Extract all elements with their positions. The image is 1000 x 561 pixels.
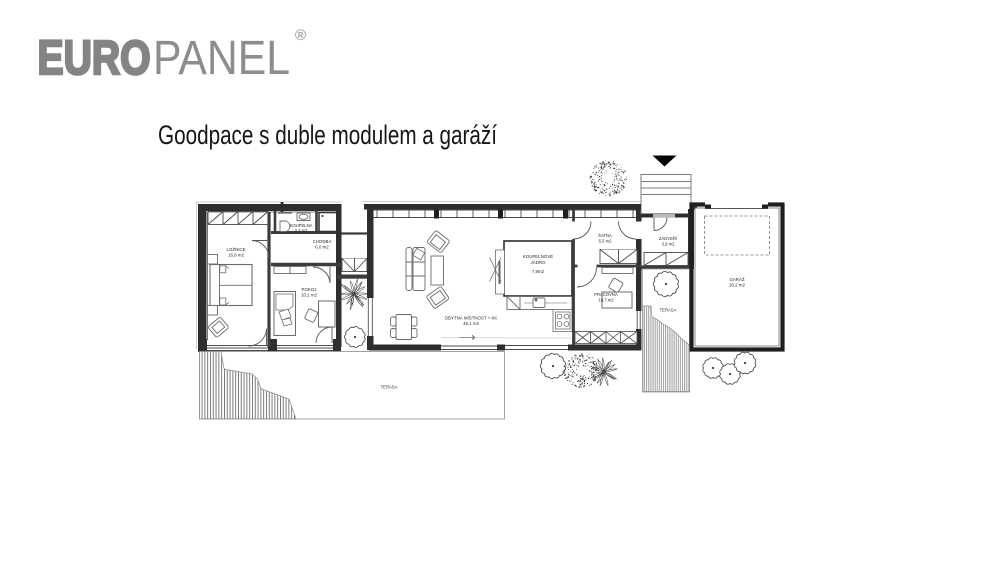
svg-text:16,6 m2: 16,6 m2 xyxy=(228,253,244,258)
svg-text:ZÁDVEŘÍ: ZÁDVEŘÍ xyxy=(659,236,678,241)
svg-text:CHODBA: CHODBA xyxy=(313,239,332,244)
svg-text:45,1 m2: 45,1 m2 xyxy=(463,321,479,326)
svg-text:POKOJ: POKOJ xyxy=(302,287,317,292)
svg-text:10,1 m2: 10,1 m2 xyxy=(301,293,317,298)
svg-text:3,9 m2: 3,9 m2 xyxy=(662,241,675,246)
svg-text:PRACOVNA: PRACOVNA xyxy=(594,292,618,297)
svg-text:10,7 m2: 10,7 m2 xyxy=(598,297,614,302)
svg-text:2,3 m2: 2,3 m2 xyxy=(295,228,308,233)
svg-text:KOUPELNOVÉ: KOUPELNOVÉ xyxy=(523,254,553,259)
svg-text:JÁDRO: JÁDRO xyxy=(531,260,546,265)
svg-text:6,0 m2: 6,0 m2 xyxy=(315,245,329,250)
svg-text:TERASA: TERASA xyxy=(381,385,398,390)
svg-text:GARÁŽ: GARÁŽ xyxy=(729,277,744,282)
svg-text:TERASA: TERASA xyxy=(660,308,677,313)
svg-text:5,5 m2: 5,5 m2 xyxy=(599,238,612,243)
svg-text:LOŽNICE: LOŽNICE xyxy=(226,247,245,252)
svg-text:20,2 m2: 20,2 m2 xyxy=(729,283,745,288)
svg-text:7,9m2: 7,9m2 xyxy=(532,269,545,274)
svg-text:OBYTNÁ MÍSTNOST + KK: OBYTNÁ MÍSTNOST + KK xyxy=(445,316,498,321)
svg-text:ŠATNA: ŠATNA xyxy=(598,233,612,238)
